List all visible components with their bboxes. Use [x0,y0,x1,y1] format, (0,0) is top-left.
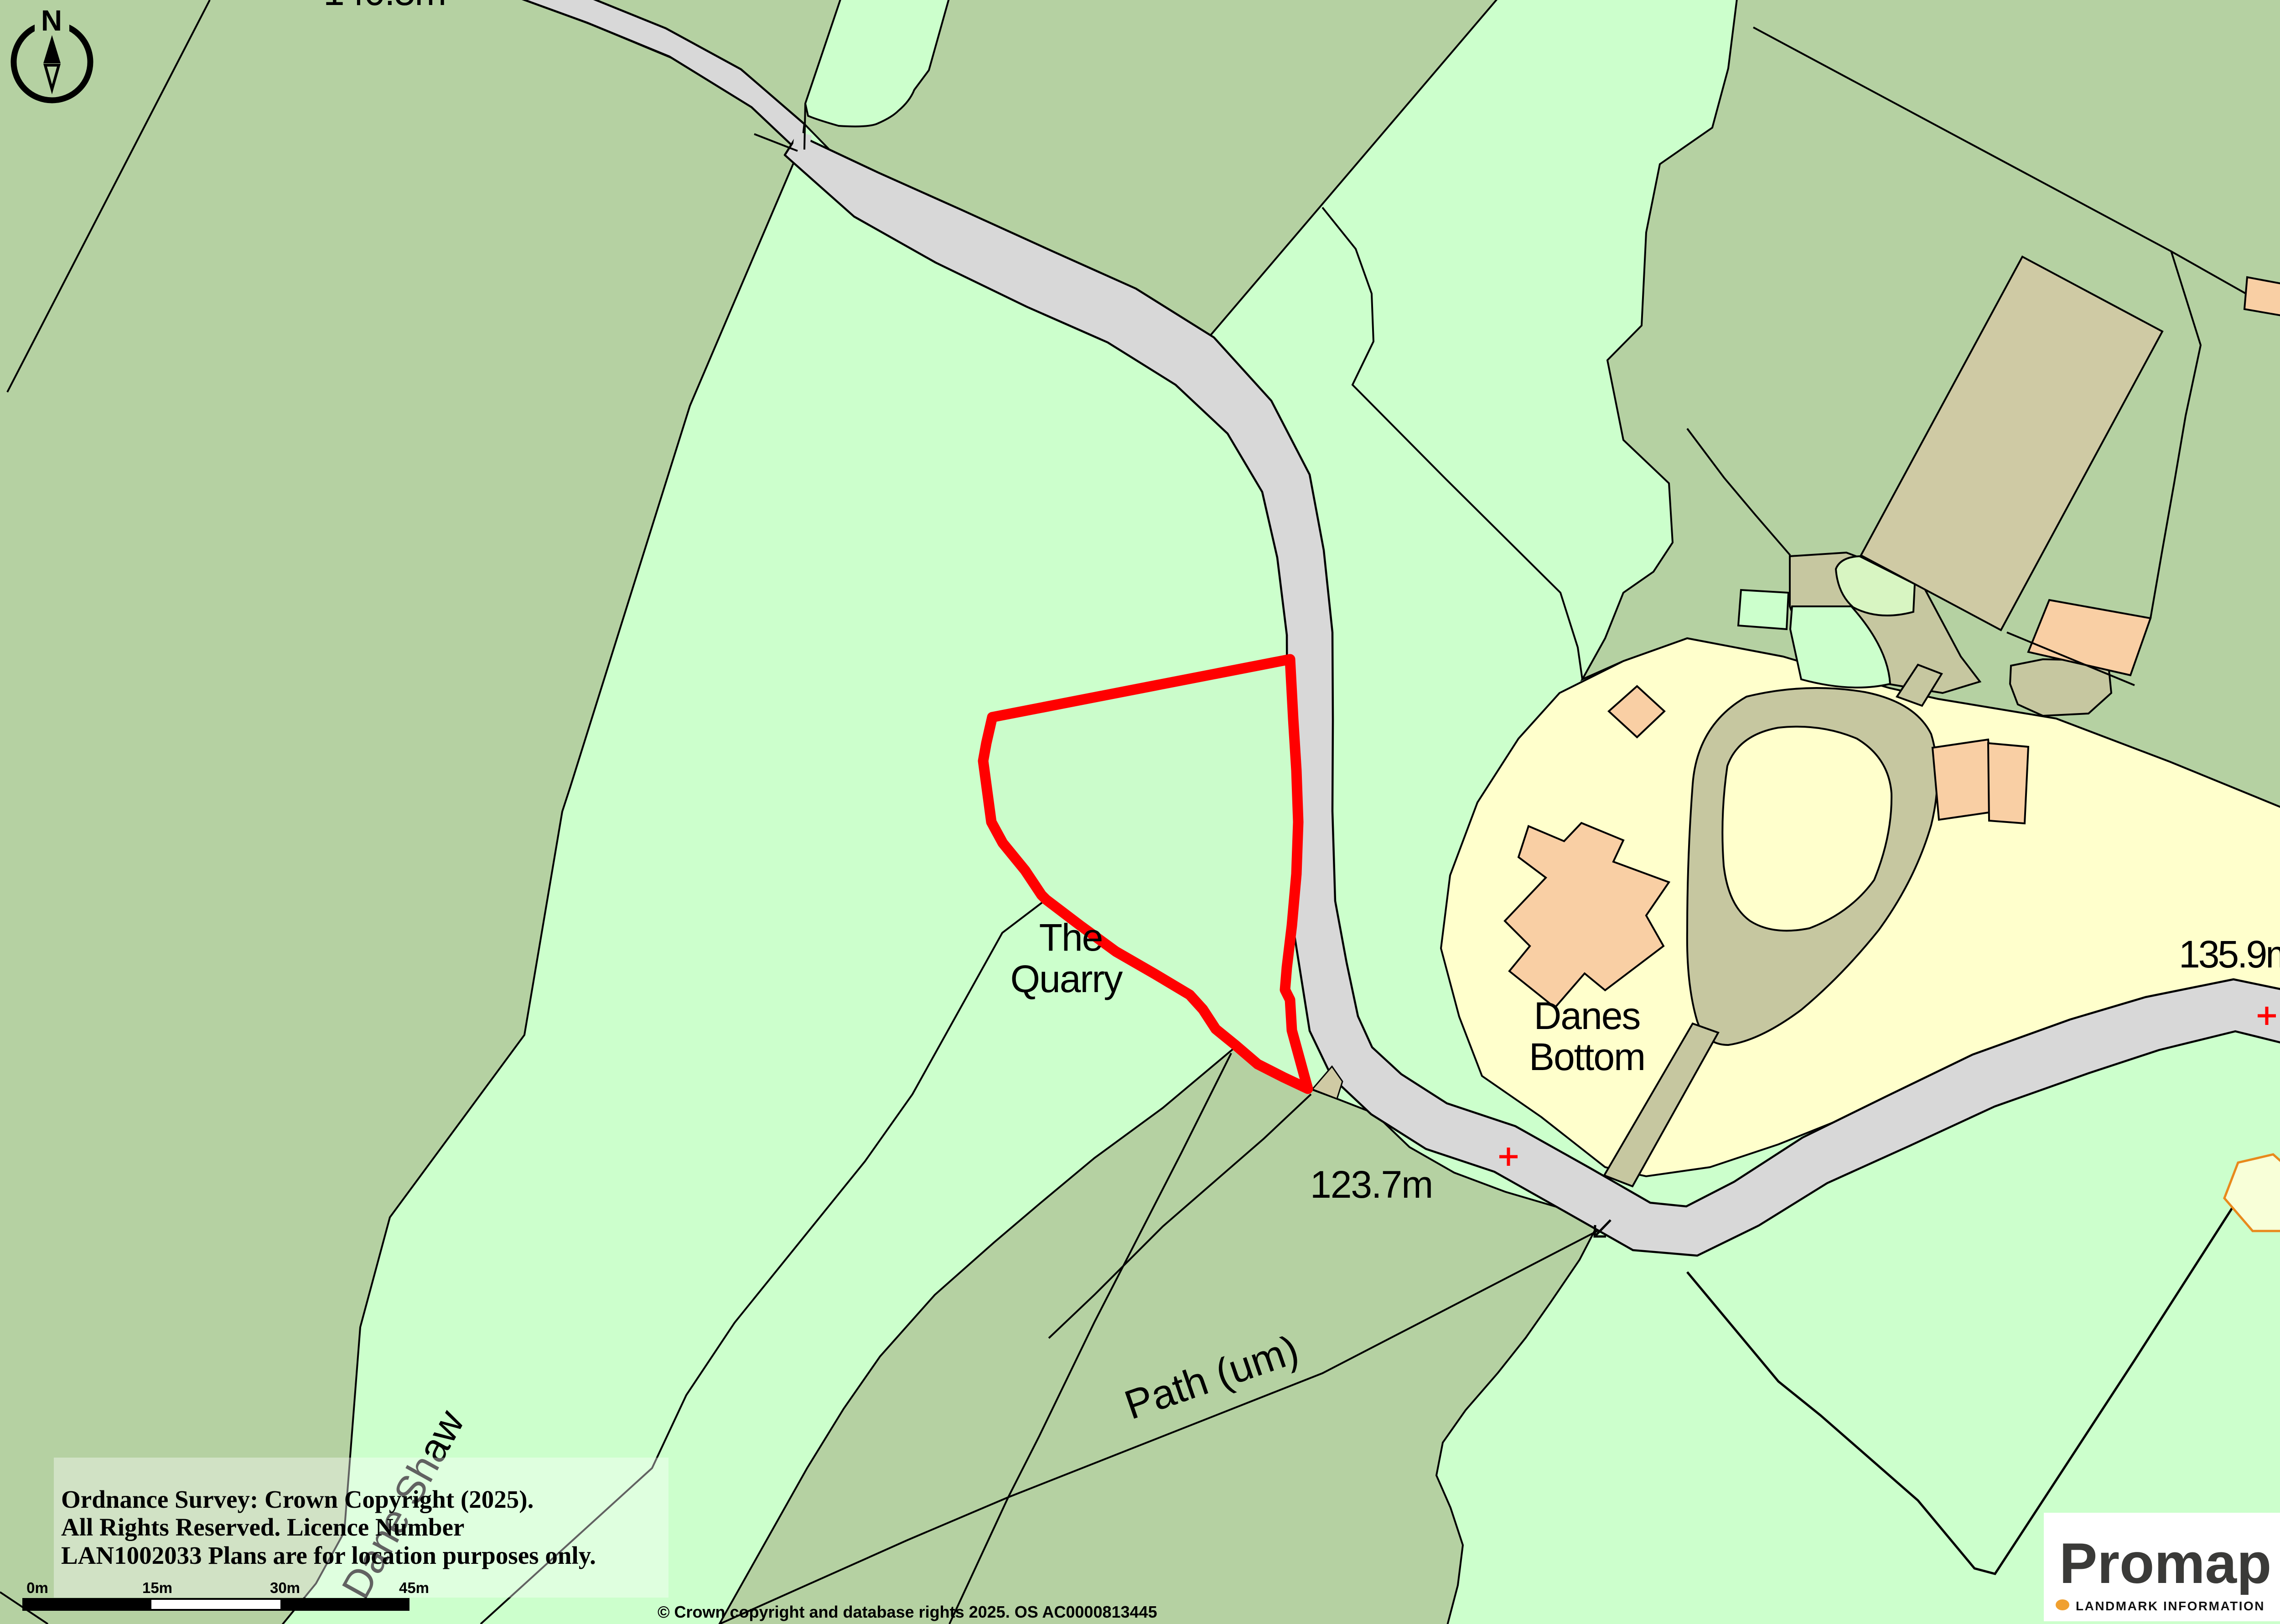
svg-text:© Crown copyright and database: © Crown copyright and database rights 20… [658,1603,1157,1621]
svg-text:The: The [1039,916,1103,959]
svg-text:Danes: Danes [1534,994,1640,1037]
svg-text:All Rights Reserved. Licence N: All Rights Reserved. Licence Number [61,1513,464,1541]
svg-text:30m: 30m [270,1579,300,1596]
svg-text:Promap: Promap [2059,1532,2271,1595]
svg-text:Ordnance Survey: Crown Copyrig: Ordnance Survey: Crown Copyright (2025). [61,1485,534,1513]
svg-text:135.9m: 135.9m [2179,933,2280,976]
svg-text:140.5m: 140.5m [323,0,446,13]
svg-text:123.7m: 123.7m [1310,1163,1432,1206]
svg-text:LANDMARK INFORMATION: LANDMARK INFORMATION [2076,1599,2265,1613]
svg-text:0m: 0m [26,1579,48,1596]
svg-text:Quarry: Quarry [1010,957,1123,1000]
svg-text:LAN1002033 Plans are for locat: LAN1002033 Plans are for location purpos… [61,1541,596,1569]
svg-text:15m: 15m [142,1579,172,1596]
svg-text:N: N [41,4,62,37]
svg-text:45m: 45m [399,1579,429,1596]
svg-text:Bottom: Bottom [1529,1035,1645,1078]
